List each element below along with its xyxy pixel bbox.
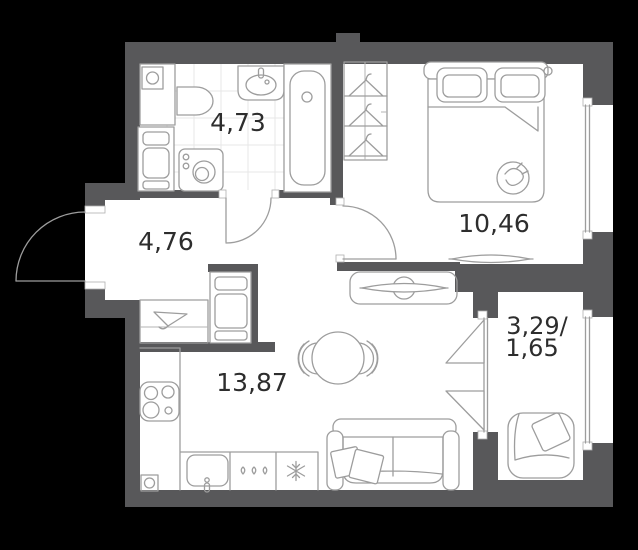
wall-right-bottom [583,443,613,505]
wall-left-lower [125,318,140,507]
bed-icon [424,62,548,202]
bedroom-area-label: 10,46 [458,209,530,238]
hall-wardrobe-icon [210,272,251,343]
wall-balcony-left-stub-bottom [473,432,498,505]
washing-machine-icon [179,149,223,191]
bathroom-area-label: 4,73 [210,108,266,137]
wall-balcony-top [455,264,583,292]
wall-bedroom-left [330,52,343,205]
balcony-area-label-line2: 1,65 [505,334,558,362]
kitchen-sink-icon [187,455,228,492]
wall-step-top-left [85,183,125,200]
wall-step-bottom-left [85,300,140,318]
toilet-icon [177,87,213,115]
floorplan-canvas: 4,73 4,76 10,46 13,87 3,29/ 1,65 [0,0,638,550]
hallway-area-label: 4,76 [138,227,194,256]
bathroom-sink-icon [238,66,284,100]
living-kitchen-area-label: 13,87 [216,368,288,397]
wall-living-top [337,262,460,271]
armchair-icon [508,412,574,478]
utility-cabinet-icon [140,64,175,125]
wall-right-mid [583,232,613,317]
floorplan-svg: 4,73 4,76 10,46 13,87 3,29/ 1,65 [0,0,638,550]
stove-icon [140,382,179,421]
wall-top-notch [336,33,360,43]
bathtub-icon [284,64,331,192]
towel-radiator-icon [138,127,174,191]
wall-top [125,42,613,64]
cat-icon [497,162,529,194]
